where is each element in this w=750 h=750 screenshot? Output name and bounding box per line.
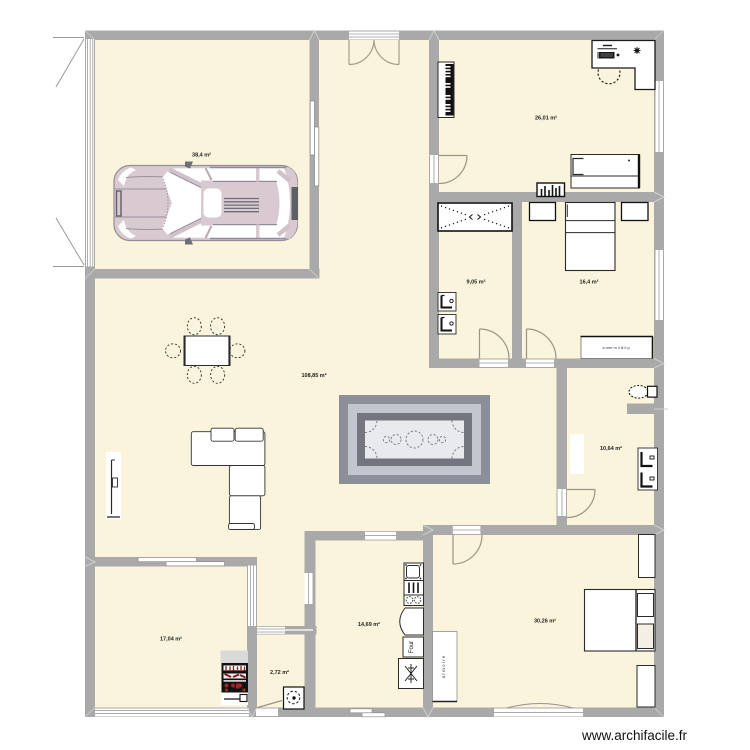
svg-text:Four: Four — [409, 641, 415, 653]
svg-text:26,01 m²: 26,01 m² — [535, 115, 557, 122]
svg-text:a mm m ii iii ii p: a mm m ii iii ii p — [602, 345, 630, 350]
svg-text:www.archifacile.fr: www.archifacile.fr — [581, 728, 688, 743]
svg-text:108,85 m²: 108,85 m² — [301, 372, 326, 379]
svg-text:9,05 m²: 9,05 m² — [467, 279, 486, 286]
svg-text:38,4 m²: 38,4 m² — [192, 152, 211, 159]
svg-text:2,72 m²: 2,72 m² — [270, 669, 289, 676]
svg-text:17,04 m²: 17,04 m² — [160, 636, 182, 643]
svg-text:16,4 m²: 16,4 m² — [580, 279, 599, 286]
svg-text:30,26 m²: 30,26 m² — [534, 618, 556, 625]
svg-text:10,64 m²: 10,64 m² — [600, 445, 622, 452]
svg-text:14,69 m²: 14,69 m² — [358, 621, 380, 628]
svg-text:a r m o i r e: a r m o i r e — [441, 655, 446, 678]
